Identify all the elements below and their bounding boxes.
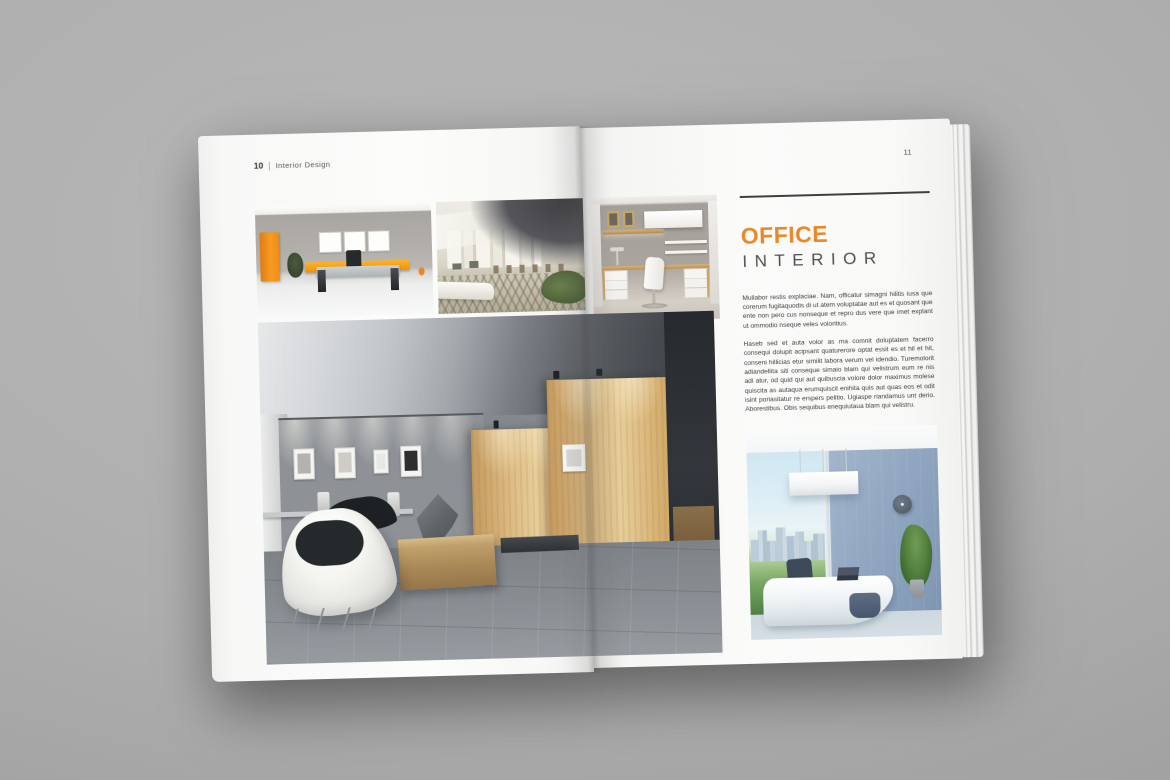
laptop-shape — [837, 567, 859, 580]
running-header: 10 | Interior Design — [254, 159, 331, 171]
spread-content: 10 | Interior Design 11 — [198, 116, 984, 684]
chair-back-shape — [643, 256, 664, 290]
wall-frame — [562, 444, 586, 472]
chair-row-shape — [493, 264, 564, 274]
wall-frame — [367, 230, 390, 252]
magazine-spread: 10 | Interior Design 11 — [198, 116, 984, 684]
plant-shape — [287, 253, 303, 278]
drawer-unit-shape — [603, 270, 629, 300]
coffee-table-shape — [397, 534, 496, 591]
side-wall-shape — [591, 204, 603, 307]
spotlight-fixture — [553, 371, 559, 379]
reception-desk-shape — [436, 281, 494, 299]
desk-leg-shape — [317, 270, 325, 293]
bench-shape — [501, 534, 579, 553]
wall-cabinet-shape — [644, 210, 702, 229]
article-body: Mullabor restis explaciae. Nam, officatu… — [742, 289, 935, 415]
wall-frame — [623, 210, 635, 226]
article-paragraph: Mullabor restis explaciae. Nam, officatu… — [742, 289, 933, 331]
drawer-unit-shape — [683, 268, 709, 298]
photo-lobby — [436, 198, 586, 314]
sofa-legs-shape — [289, 606, 397, 636]
floating-shelf-shape — [665, 240, 707, 244]
pendant-light-shape — [789, 471, 858, 496]
desk-top-shape — [316, 265, 399, 278]
monitor-shape — [452, 263, 461, 270]
title-rule — [740, 191, 930, 197]
spotlight-fixture — [597, 368, 603, 376]
wall-frame — [373, 449, 389, 474]
backdrop: 10 | Interior Design 11 — [0, 0, 1170, 780]
chair-stem-shape — [652, 289, 656, 304]
dark-ceiling-shape — [470, 198, 585, 268]
orange-door-shape — [260, 232, 280, 282]
right-page-number: 11 — [904, 148, 912, 157]
desk-leg-shape — [390, 268, 398, 291]
photo-orange-office — [255, 202, 434, 319]
side-wall-shape — [708, 201, 720, 304]
wall-frame — [343, 231, 366, 253]
wall-frame — [334, 447, 356, 479]
photo-lounge-gallery — [258, 311, 723, 665]
desk-opening-shape — [849, 592, 880, 618]
photo-desk-nook — [591, 195, 720, 322]
photo-blue-office — [746, 425, 942, 640]
left-page-number: 10 — [254, 161, 264, 171]
spotlight-fixture — [493, 421, 499, 429]
wood-shelf-shape — [603, 230, 664, 235]
article-paragraph: Haseb sed et auta volor as ma comnit dol… — [743, 335, 935, 415]
article-title-primary: OFFICE — [740, 220, 931, 248]
article-column: OFFICE INTERIOR Mullabor restis explacia… — [740, 191, 936, 415]
wall-frame — [293, 448, 315, 480]
section-title: Interior Design — [275, 160, 330, 170]
desk-lamp-shape — [616, 249, 619, 265]
chair-base-shape — [641, 303, 668, 309]
header-separator: | — [268, 160, 271, 170]
floating-shelf-shape — [665, 249, 707, 253]
orange-vase-shape — [418, 267, 424, 275]
wall-frame — [400, 445, 422, 477]
article-title-secondary: INTERIOR — [742, 248, 931, 270]
wall-frame — [607, 211, 619, 227]
monitor-shape — [470, 261, 479, 268]
wall-frame — [319, 231, 342, 253]
